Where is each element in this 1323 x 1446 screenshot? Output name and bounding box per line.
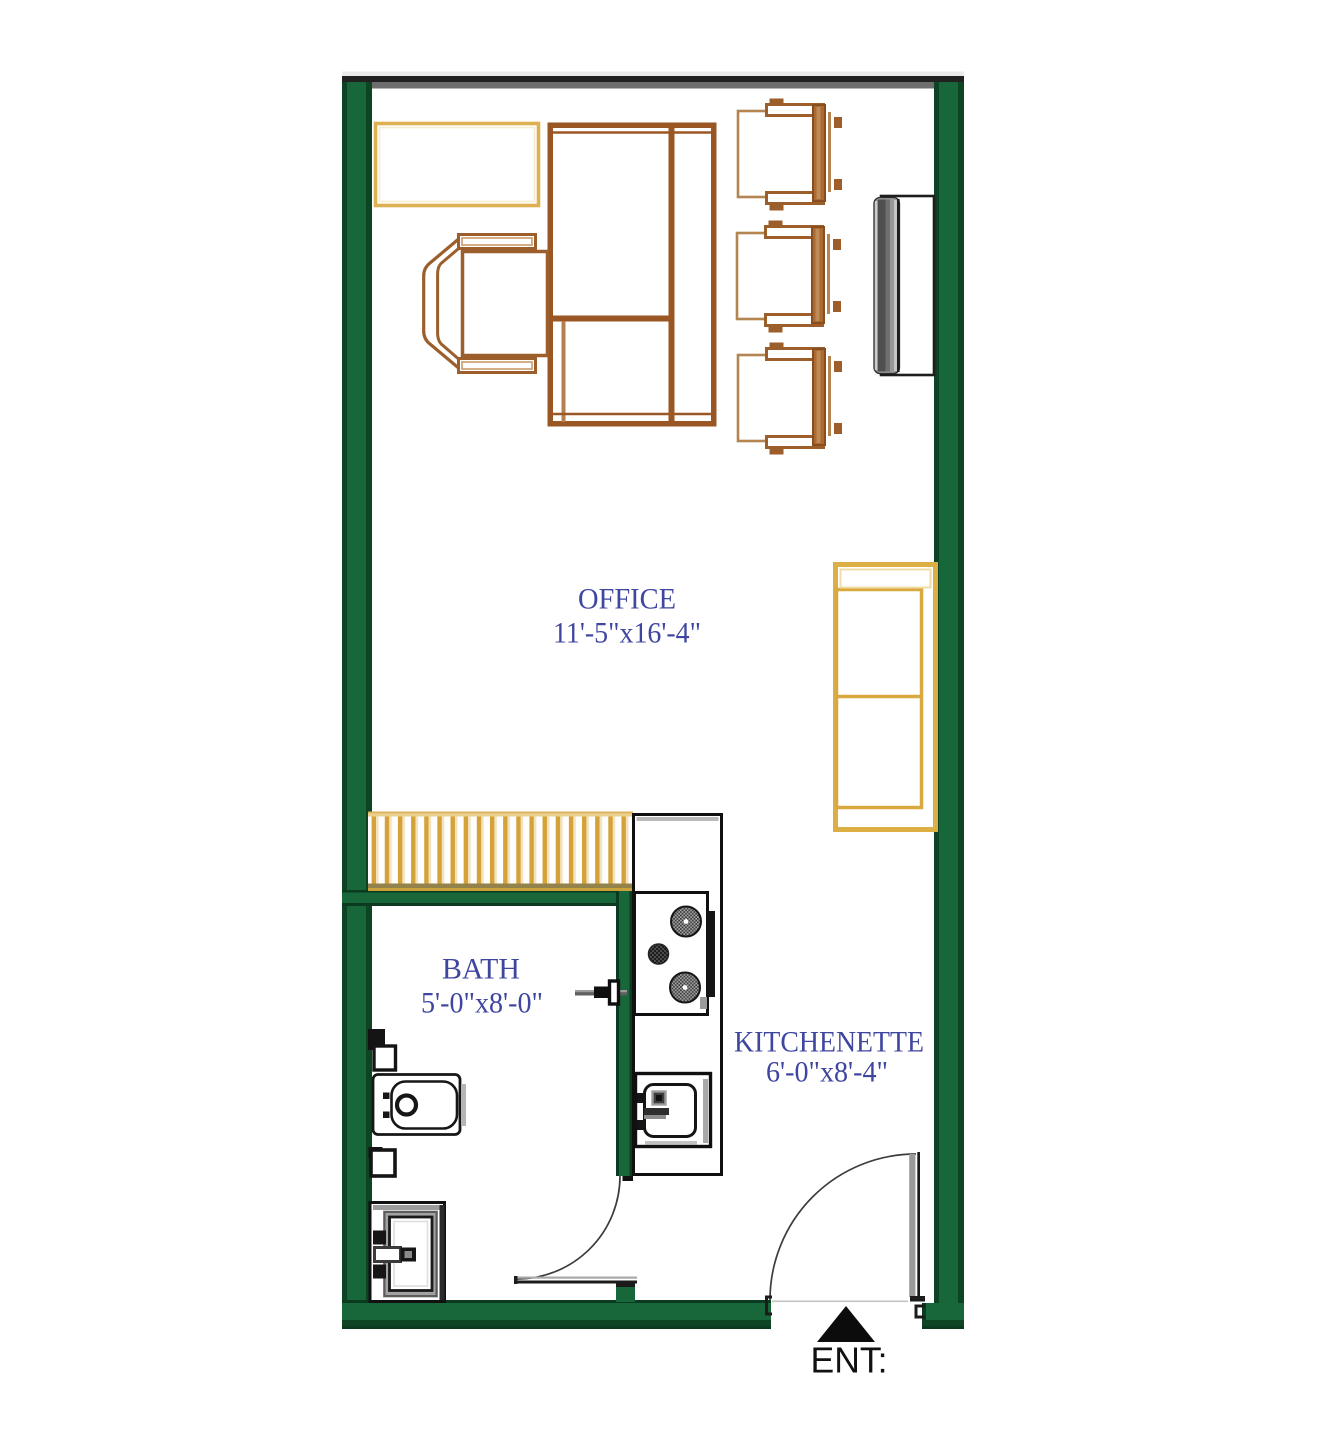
svg-text:6'-0"x8'-4": 6'-0"x8'-4"	[766, 1056, 888, 1089]
svg-text:KITCHENETTE: KITCHENETTE	[734, 1026, 924, 1059]
svg-text:ENT:: ENT:	[811, 1340, 888, 1381]
svg-text:OFFICE: OFFICE	[578, 583, 676, 616]
svg-text:5'-0"x8'-0": 5'-0"x8'-0"	[421, 987, 543, 1020]
svg-text:11'-5"x16'-4": 11'-5"x16'-4"	[553, 617, 701, 650]
svg-text:BATH: BATH	[442, 953, 520, 986]
